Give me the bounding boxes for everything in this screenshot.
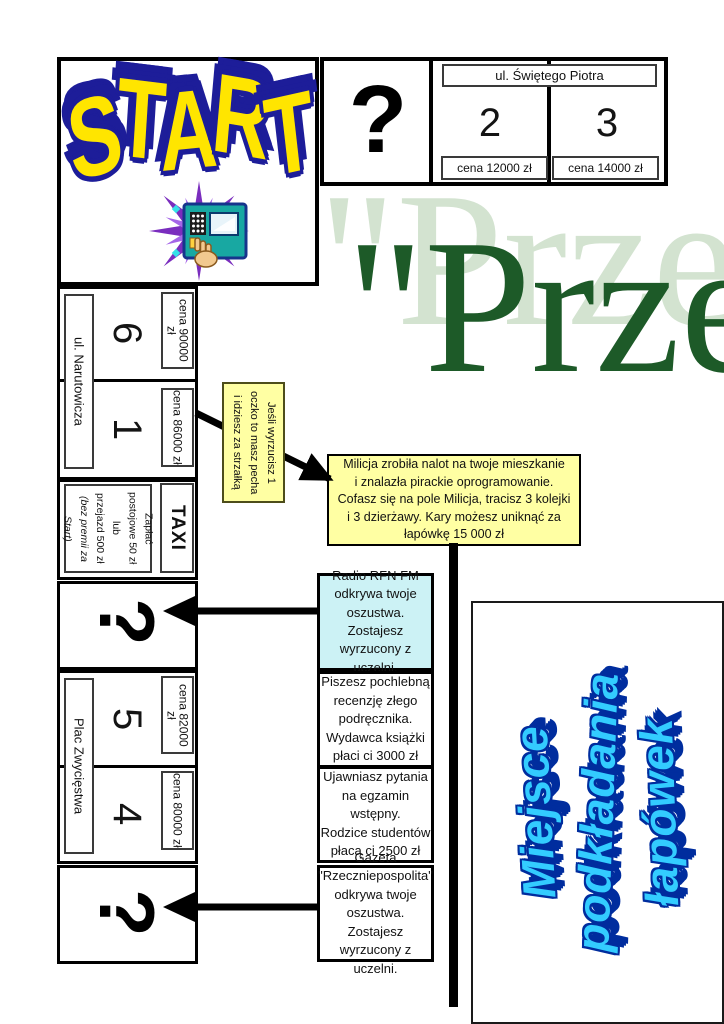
wordart-line: łapówek bbox=[621, 621, 696, 1003]
start-letter: T bbox=[260, 75, 316, 195]
street-name: ul. Narutowicza bbox=[73, 337, 86, 426]
street-name: Plac Zwycięstwa bbox=[73, 718, 86, 814]
start-wordart: START bbox=[62, 62, 314, 194]
cell-6-price: cena 90000 zł bbox=[161, 292, 194, 369]
cell-5-number: 5 bbox=[107, 708, 147, 730]
taxi-label: TAXI bbox=[166, 505, 188, 551]
bribe-wordart: Miejsce podkładania łapówek bbox=[487, 622, 707, 1002]
street-header-narutowicza: ul. Narutowicza bbox=[64, 294, 94, 469]
taxi-label-box: TAXI bbox=[160, 483, 194, 573]
question-mark-rotated: ? bbox=[88, 889, 166, 937]
atm-icon bbox=[140, 180, 258, 282]
mystery-cell-top: ? bbox=[328, 64, 428, 176]
question-mark: ? bbox=[349, 72, 408, 168]
start-letter: S bbox=[62, 77, 124, 199]
note-gazeta: Gazeta"Rzeczniepospolita"odkrywa twojeos… bbox=[317, 865, 434, 962]
cell-3-price: cena 14000 zł bbox=[552, 156, 659, 180]
cell-2-number: 2 bbox=[455, 88, 525, 158]
street-name: ul. Świętego Piotra bbox=[495, 69, 603, 82]
taxi-fee-text: Zapłać postojowe 50 zł lub przejazd 500 … bbox=[59, 492, 156, 564]
cell-4-price: cena 80000 zł bbox=[161, 771, 194, 850]
cell-divider bbox=[429, 59, 433, 184]
start-letter: R bbox=[208, 57, 270, 177]
cell-3-number: 3 bbox=[572, 88, 642, 158]
start-letter: A bbox=[157, 72, 215, 189]
question-mark-rotated: ? bbox=[88, 598, 166, 646]
taxi-fee-note: Zapłać postojowe 50 zł lub przejazd 500 … bbox=[64, 484, 152, 573]
cell-1-number: 1 bbox=[107, 418, 147, 440]
game-board-page: { "board": { "start_label": "START", "st… bbox=[0, 0, 724, 1024]
cell-2-price: cena 12000 zł bbox=[441, 156, 548, 180]
cell-5-price: cena 82000 zł bbox=[161, 676, 194, 754]
board-title: "Przekręt bbox=[346, 211, 724, 403]
cell-1-price: cena 86000 zł bbox=[161, 388, 194, 467]
cell-4-number: 4 bbox=[107, 803, 147, 825]
street-header-piotra: ul. Świętego Piotra bbox=[442, 64, 657, 87]
connector-line bbox=[449, 543, 458, 1007]
street-header-zwyciestwa: Plac Zwycięstwa bbox=[64, 678, 94, 854]
note-radio: Radio RFN FModkrywa twojeoszustwa. Zosta… bbox=[317, 573, 434, 671]
note-milicja: Milicja zrobiła nalot na twoje mieszkani… bbox=[327, 454, 581, 546]
note-piszesz: Piszesz pochlebnąrecenzję złegopodręczni… bbox=[317, 671, 434, 768]
cell-6-number: 6 bbox=[107, 322, 147, 344]
note-jesli: Jeśli wyrzucisz 1 oczko to masz pecha i … bbox=[222, 382, 285, 503]
note-jesli-text: Jeśli wyrzucisz 1 oczko to masz pecha i … bbox=[228, 391, 279, 494]
